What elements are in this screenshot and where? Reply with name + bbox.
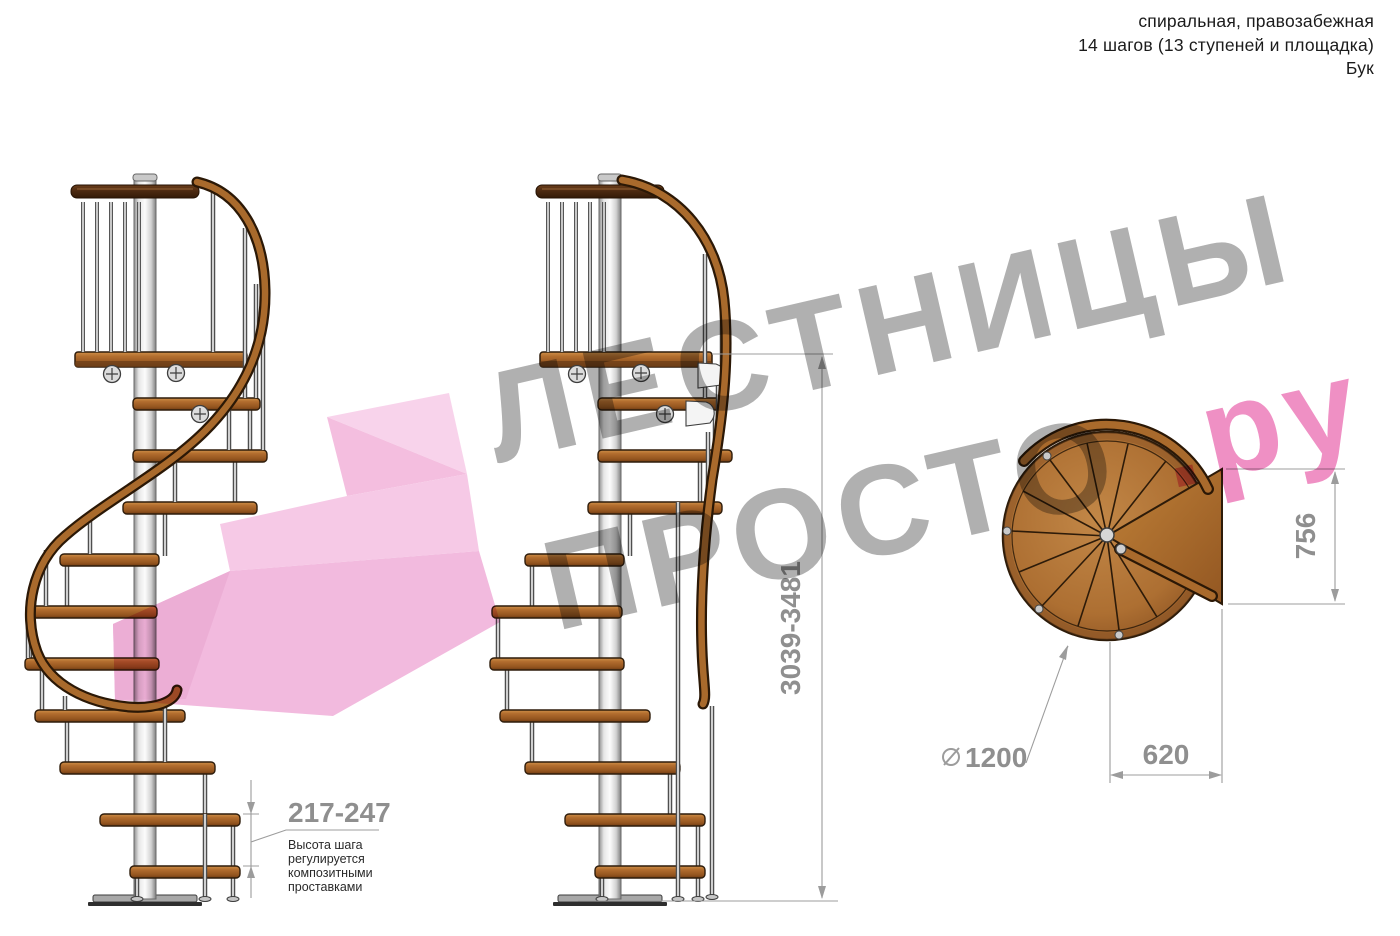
watermark-domain-suffix: .ру <box>1145 330 1379 516</box>
technical-drawing-canvas: спиральная, правозабежная 14 шагов (13 с… <box>0 0 1400 936</box>
pink-direction-arrow <box>113 393 500 716</box>
drawing-svg: 3039-3481 217-247 Высота шага регулирует… <box>0 0 1400 936</box>
svg-text:проставками: проставками <box>288 880 362 894</box>
dim-step-height-note: Высота шага <box>288 838 363 852</box>
dim-diameter-label: 1200 <box>965 742 1027 773</box>
dim-landing-depth-label: 756 <box>1290 513 1321 560</box>
dim-step-height-label: 217-247 <box>288 797 391 828</box>
svg-text:регулируется: регулируется <box>288 852 365 866</box>
svg-text:композитными: композитными <box>288 866 373 880</box>
dim-step-width-label: 620 <box>1143 739 1190 770</box>
